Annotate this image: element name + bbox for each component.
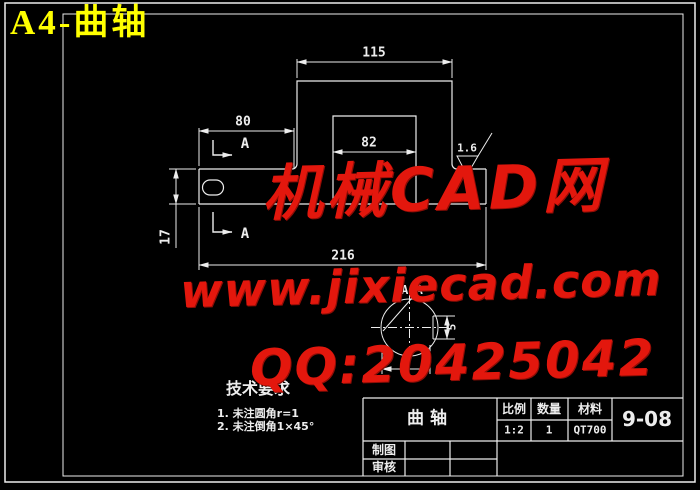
tech-requirement-1: 1. 未注圆角r=1	[217, 408, 299, 419]
dim-roughness: 1.6	[457, 143, 477, 154]
title-block-drawing-no: 9-08	[622, 409, 672, 429]
title-block-qty-label: 数量	[537, 403, 561, 415]
tech-requirement-2: 2. 未注倒角1×45°	[217, 421, 314, 432]
section-marker-top: A	[241, 137, 249, 151]
section-marker-bottom: A	[241, 227, 249, 241]
dim-115-lines	[297, 59, 452, 78]
title-block-scale-label: 比例	[502, 403, 526, 415]
dim-82: 82	[361, 137, 377, 150]
cad-sheet: A4-曲轴 115 80 82 216 17 1.6 A A A-A 5 2 技…	[0, 0, 700, 490]
watermark-url: www.jixiecad.com	[179, 256, 662, 315]
title-block-material-label: 材料	[578, 403, 602, 415]
title-block-scale-value: 1:2	[504, 425, 524, 436]
keyway-slot	[203, 180, 224, 195]
title-block-checker-label: 审核	[372, 461, 396, 473]
watermark-qq: QQ:20425042	[249, 333, 655, 394]
sheet-corner-label: A4-曲轴	[10, 5, 149, 40]
title-block-part-name: 曲轴	[407, 411, 453, 428]
section-cut-markers	[213, 140, 232, 232]
title-block-material-value: QT700	[573, 425, 606, 436]
title-block-qty-value: 1	[546, 425, 553, 436]
title-block-drafter-label: 制图	[372, 444, 396, 456]
drawing-linework	[0, 0, 700, 490]
dim-115: 115	[362, 47, 385, 60]
dim-keyway: 5	[447, 324, 458, 331]
dim-17: 17	[160, 229, 173, 245]
dim-80: 80	[235, 116, 251, 129]
watermark-site-name: 机械CAD网	[261, 156, 607, 225]
